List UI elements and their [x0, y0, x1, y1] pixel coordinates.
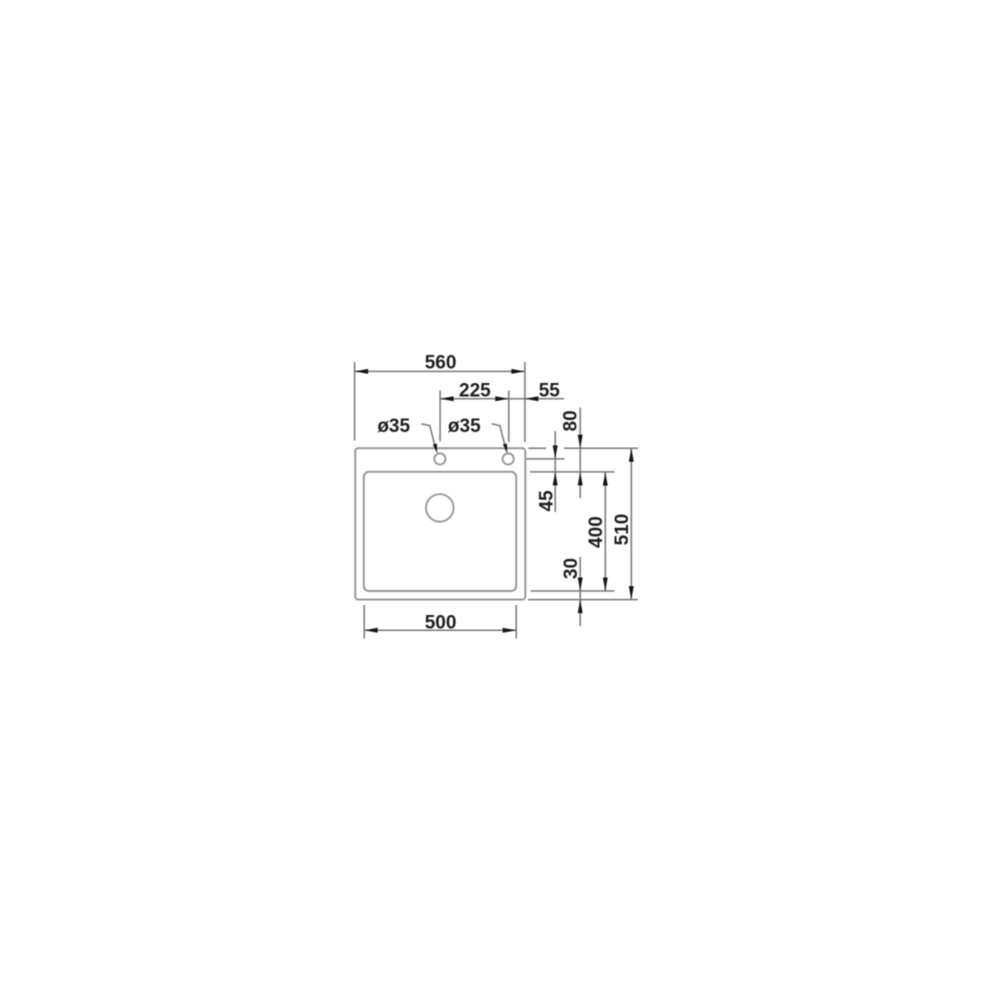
svg-text:560: 560 — [425, 353, 457, 374]
svg-text:55: 55 — [539, 380, 561, 401]
svg-text:ø35: ø35 — [448, 416, 481, 437]
svg-text:500: 500 — [425, 612, 457, 633]
svg-text:225: 225 — [459, 380, 491, 401]
svg-text:510: 510 — [612, 514, 633, 546]
svg-text:400: 400 — [586, 516, 607, 548]
svg-text:30: 30 — [561, 558, 582, 579]
svg-text:45: 45 — [537, 490, 558, 512]
svg-text:ø35: ø35 — [377, 416, 410, 437]
svg-text:80: 80 — [561, 410, 582, 431]
